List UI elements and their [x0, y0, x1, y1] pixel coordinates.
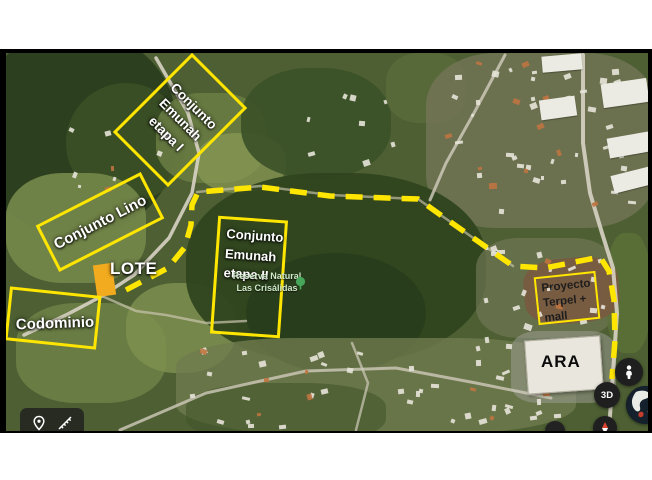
screenshot-page: Conjunto Emunah etapa I Conjunto Lino LO… — [0, 0, 652, 480]
3d-button-label: 3D — [601, 390, 613, 401]
location-pin-icon[interactable] — [31, 415, 47, 431]
map-toolbar[interactable] — [20, 408, 84, 431]
satellite-map-canvas[interactable]: Conjunto Emunah etapa I Conjunto Lino LO… — [6, 53, 648, 431]
ara-label: ARA — [541, 352, 581, 372]
compass-needle-icon — [598, 421, 612, 431]
codominio-label: Codominio — [12, 314, 99, 334]
lote-label: LOTE — [110, 259, 157, 279]
street-view-pegman-button[interactable] — [615, 358, 643, 386]
tree-icon — [294, 276, 307, 291]
3d-toggle-button[interactable]: 3D — [594, 382, 620, 408]
terpel-label: Proyecto Terpel + mall — [541, 277, 595, 327]
measure-ruler-icon[interactable] — [57, 415, 73, 431]
map-frame: Conjunto Emunah etapa I Conjunto Lino LO… — [0, 49, 652, 433]
pegman-icon — [621, 364, 637, 380]
